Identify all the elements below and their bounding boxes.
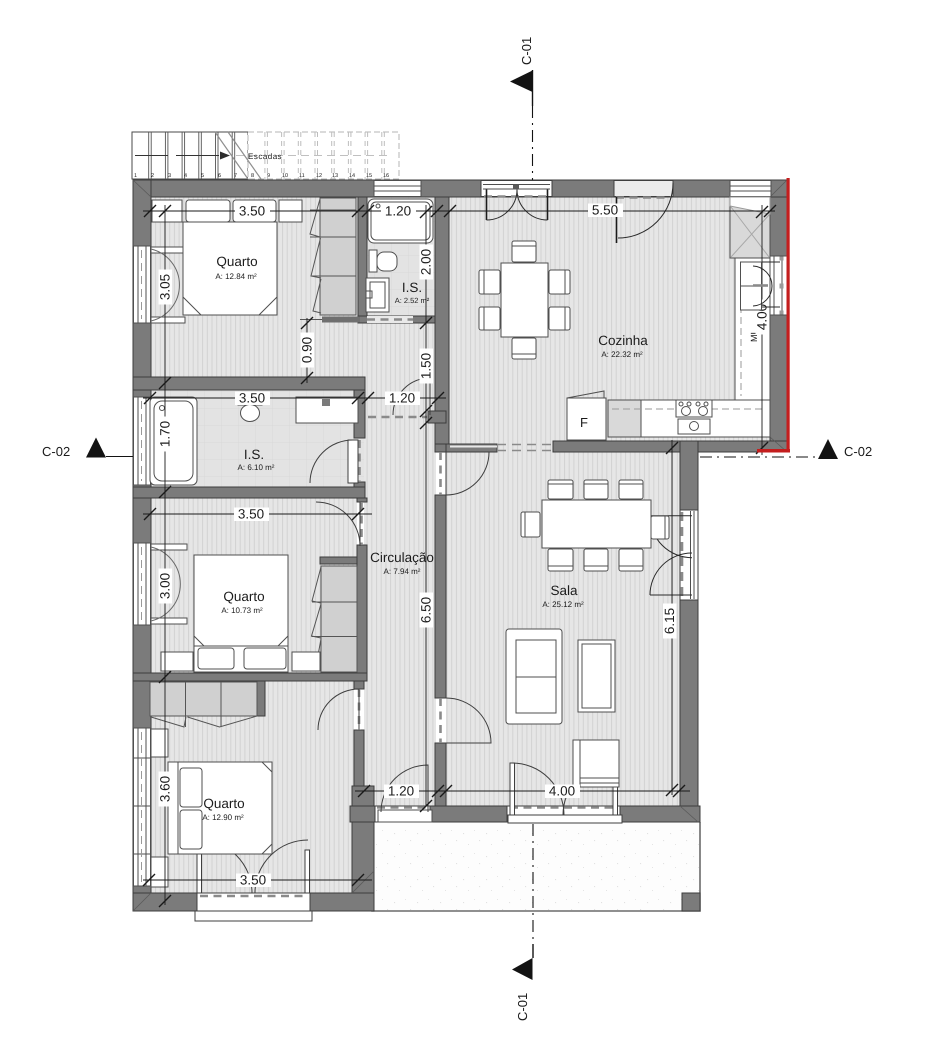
svg-text:4: 4 (184, 173, 187, 179)
svg-text:14: 14 (349, 173, 355, 179)
svg-text:A: 25.12 m²: A: 25.12 m² (542, 600, 584, 609)
svg-text:I.S.: I.S. (402, 280, 422, 295)
svg-text:C-02: C-02 (42, 444, 70, 459)
svg-text:6.15: 6.15 (662, 608, 677, 634)
svg-text:1.20: 1.20 (385, 204, 411, 219)
svg-text:3.50: 3.50 (239, 391, 265, 406)
svg-text:15: 15 (366, 173, 372, 179)
svg-text:11: 11 (299, 173, 305, 179)
svg-text:2: 2 (151, 173, 154, 179)
svg-text:5.50: 5.50 (592, 203, 618, 218)
svg-text:3.50: 3.50 (238, 507, 264, 522)
svg-text:8: 8 (251, 173, 254, 179)
svg-text:3.05: 3.05 (158, 274, 173, 300)
svg-text:9: 9 (267, 173, 270, 179)
svg-text:Quarto: Quarto (223, 589, 264, 604)
svg-text:12: 12 (316, 173, 322, 179)
svg-text:C-01: C-01 (515, 993, 530, 1021)
svg-text:A: 6.10 m²: A: 6.10 m² (238, 463, 275, 472)
svg-text:3: 3 (168, 173, 171, 179)
svg-text:C-01: C-01 (519, 37, 534, 65)
svg-text:Escadas: Escadas (248, 152, 282, 161)
svg-text:1: 1 (134, 173, 137, 179)
svg-text:3.50: 3.50 (239, 204, 265, 219)
svg-text:Quarto: Quarto (203, 796, 244, 811)
svg-text:F: F (580, 415, 588, 430)
svg-text:16: 16 (383, 173, 389, 179)
svg-text:Quarto: Quarto (216, 254, 257, 269)
svg-text:1.20: 1.20 (388, 784, 414, 799)
svg-text:A: 2.52 m²: A: 2.52 m² (395, 296, 430, 305)
svg-text:13: 13 (332, 173, 338, 179)
svg-text:Circulação: Circulação (370, 550, 434, 565)
svg-text:A: 12.84 m²: A: 12.84 m² (215, 272, 257, 281)
svg-text:3.50: 3.50 (240, 873, 266, 888)
svg-text:1.50: 1.50 (419, 353, 434, 379)
svg-text:Sala: Sala (550, 583, 578, 598)
svg-text:1.20: 1.20 (389, 391, 415, 406)
svg-text:2.00: 2.00 (419, 249, 434, 275)
svg-text:C-02: C-02 (844, 444, 872, 459)
svg-text:A: 7.94 m²: A: 7.94 m² (384, 567, 421, 576)
svg-text:A: 12.90 m²: A: 12.90 m² (202, 813, 244, 822)
svg-text:3.60: 3.60 (158, 776, 173, 802)
svg-text:Cozinha: Cozinha (598, 333, 648, 348)
svg-text:0.90: 0.90 (300, 337, 315, 363)
svg-text:1.70: 1.70 (158, 421, 173, 447)
svg-text:7: 7 (234, 173, 237, 179)
svg-text:3.00: 3.00 (158, 573, 173, 599)
svg-text:6: 6 (218, 173, 221, 179)
svg-text:A: 22.32 m²: A: 22.32 m² (601, 350, 643, 359)
svg-text:5: 5 (201, 173, 204, 179)
svg-text:6.50: 6.50 (419, 597, 434, 623)
svg-text:10: 10 (282, 173, 288, 179)
svg-text:A: 10.73 m²: A: 10.73 m² (221, 606, 263, 615)
svg-text:4.00: 4.00 (549, 784, 575, 799)
svg-text:I.S.: I.S. (244, 447, 264, 462)
